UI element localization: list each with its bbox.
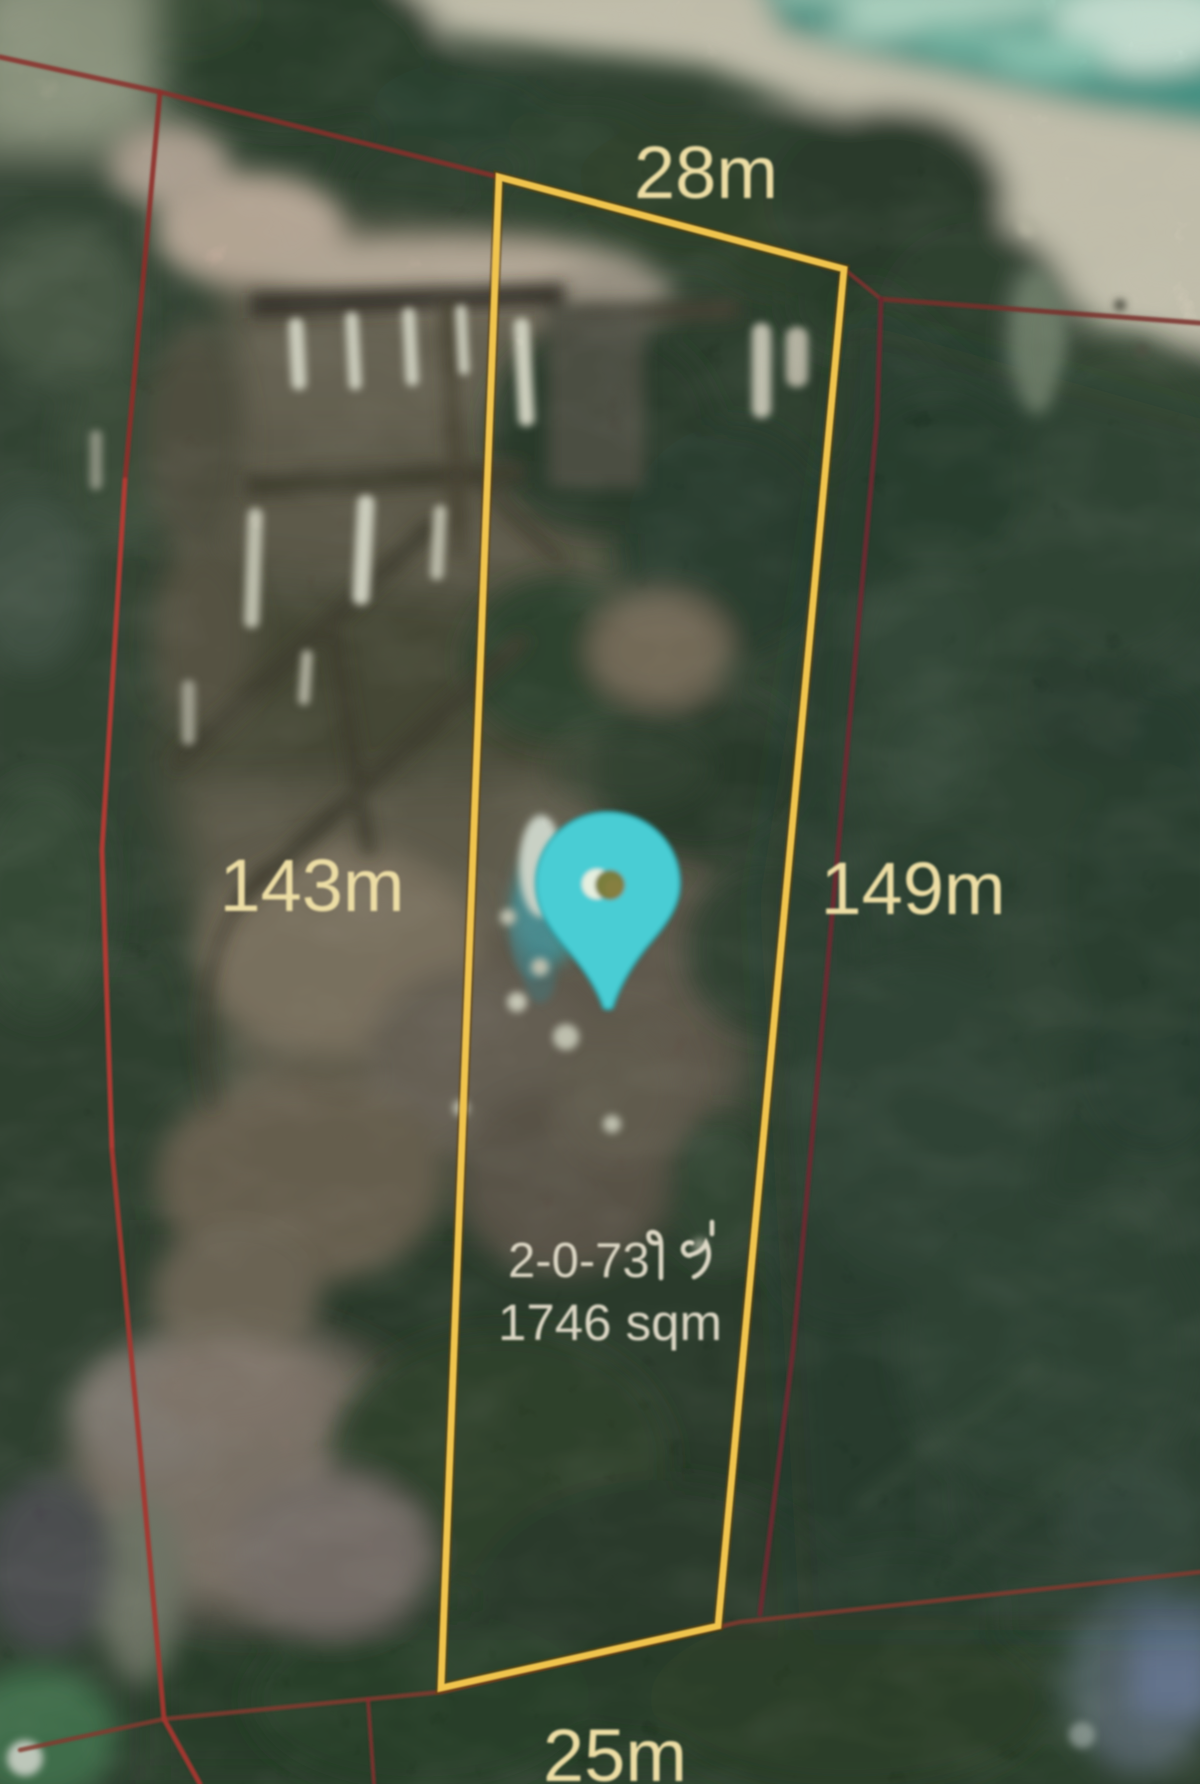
svg-text:28m: 28m [634, 131, 778, 214]
svg-text:2-0-73: 2-0-73 [508, 1234, 650, 1288]
svg-text:25m: 25m [543, 1714, 687, 1784]
svg-text:149m: 149m [820, 847, 1005, 930]
svg-text:143m: 143m [219, 844, 404, 927]
svg-text:1746 sqm: 1746 sqm [498, 1294, 722, 1351]
